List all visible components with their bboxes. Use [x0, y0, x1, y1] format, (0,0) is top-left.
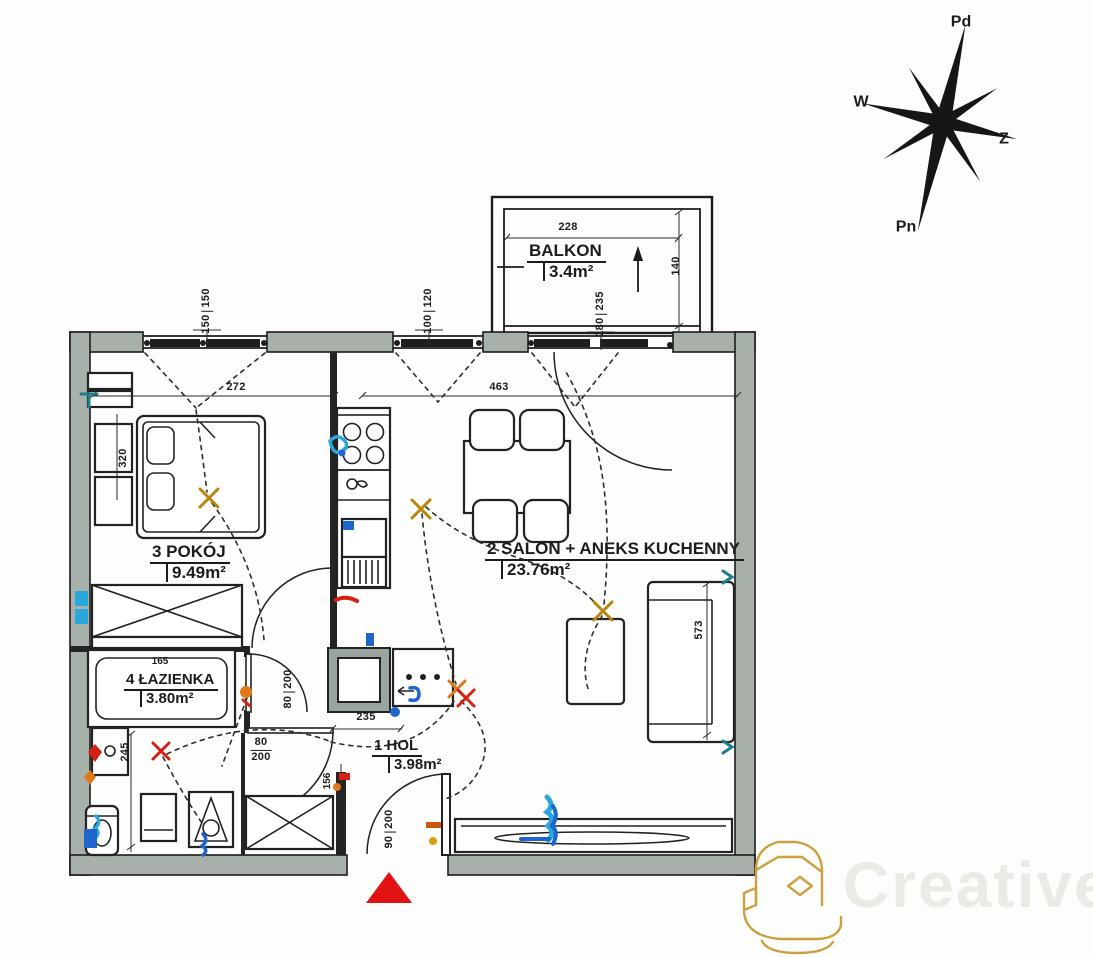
- hall-wardrobe-crossed: [246, 796, 333, 849]
- room-label-salon: 2 SALON + ANEKS KUCHENNY 23.76m²: [485, 540, 744, 580]
- entrance-door: [367, 774, 450, 855]
- dishwasher-hatch: [342, 557, 386, 587]
- dim-value: 100: [423, 315, 435, 334]
- dim-bedroom-width: 272: [226, 382, 245, 394]
- dim-hall-door: 80 200: [251, 737, 272, 763]
- room-label-balkon: BALKON 3.4m²: [527, 242, 606, 282]
- dim-value: 150: [201, 288, 213, 311]
- chair: [520, 410, 564, 450]
- room-title: 3 POKÓJ: [150, 543, 230, 564]
- dim-entrance-door: 90200: [384, 809, 396, 848]
- bathroom-cabinet: [141, 794, 176, 841]
- dim-balcony-width: 228: [558, 222, 577, 234]
- dim-kitchen-window: 100120: [423, 288, 435, 334]
- entrance-triangle-marker: [366, 872, 412, 903]
- chair: [473, 500, 517, 542]
- bedroom-window: [143, 336, 267, 348]
- dining-table: [464, 410, 570, 542]
- dim-balcony-door: 180235: [595, 291, 607, 337]
- dim-bathroom-door: 80200: [283, 669, 295, 708]
- bed: [137, 416, 265, 538]
- dim-balcony-depth: 140: [671, 256, 683, 275]
- dim-value: 80: [251, 737, 272, 751]
- room-area: 3.98m²: [388, 757, 442, 773]
- balcony-north-arrow: [633, 246, 643, 292]
- dim-value: 150: [201, 315, 213, 334]
- room-title: 4 ŁAZIENKA: [124, 672, 218, 691]
- dim-value: 80: [283, 696, 295, 709]
- compass-label-east: W: [853, 95, 868, 112]
- chair: [524, 500, 568, 542]
- kitchen-window: [393, 336, 483, 348]
- room-area: 3.4m²: [543, 263, 593, 281]
- dim-value: 200: [251, 751, 272, 764]
- washing-machine: [189, 792, 233, 847]
- compass-label-north: Pn: [896, 220, 916, 237]
- floor-plan-drawing: [0, 0, 1093, 957]
- bedroom-wardrobe: [92, 585, 242, 648]
- room-title: 1 HOL: [372, 738, 422, 757]
- dim-value: 235: [595, 291, 607, 314]
- room-area: 9.49m²: [166, 564, 226, 582]
- dim-sofa-wall: 573: [694, 620, 706, 639]
- lamp-x-salon: [594, 602, 612, 620]
- bedroom-bench: [88, 373, 132, 407]
- dim-hall: 235: [356, 712, 375, 724]
- watermark-text: Creative: [843, 848, 1093, 922]
- sofa: [648, 582, 734, 742]
- dim-salon-width: 463: [489, 382, 508, 394]
- dim-bedroom-depth: 320: [118, 448, 130, 467]
- chair: [470, 410, 514, 450]
- bathroom-door: [246, 654, 307, 712]
- coffee-table: [567, 619, 624, 704]
- room-area: 23.76m²: [501, 561, 570, 579]
- compass-rose-icon: [862, 23, 1019, 233]
- dim-value: 180: [595, 318, 607, 337]
- room-area: 3.80m²: [140, 691, 194, 707]
- dim-value: 90: [384, 836, 396, 849]
- room-title: 2 SALON + ANEKS KUCHENNY: [485, 540, 744, 561]
- lamp-x-bathroom: [153, 743, 169, 759]
- nightstands: [95, 424, 132, 525]
- room-title: BALKON: [527, 242, 606, 263]
- room-label-lazienka: 4 ŁAZIENKA 3.80m²: [124, 672, 218, 708]
- watermark-logo-icon: [744, 842, 841, 953]
- dim-bathroom-depth: 245: [120, 742, 132, 761]
- floor-plan-page: Pd W Z Pn BALKON 3.4m² 3 POKÓJ 9.49m² 2 …: [0, 0, 1093, 957]
- compass-label-west: Z: [999, 132, 1009, 149]
- dim-value: 200: [283, 669, 295, 692]
- hall-sideboard: [455, 819, 732, 852]
- dim-bedroom-window: 150150: [201, 288, 213, 334]
- dim-bathtub: 165: [152, 657, 169, 668]
- room-label-pokoj: 3 POKÓJ 9.49m²: [150, 543, 230, 583]
- dim-value: 120: [423, 288, 435, 311]
- dim-value: 200: [384, 809, 396, 832]
- kitchen-counter: [337, 408, 390, 588]
- hall-dresser: [393, 649, 453, 706]
- compass-label-south: Pd: [951, 15, 971, 32]
- dim-entry: 156: [323, 773, 334, 790]
- room-label-hol: 1 HOL 3.98m²: [372, 738, 442, 774]
- shaft: [328, 648, 390, 712]
